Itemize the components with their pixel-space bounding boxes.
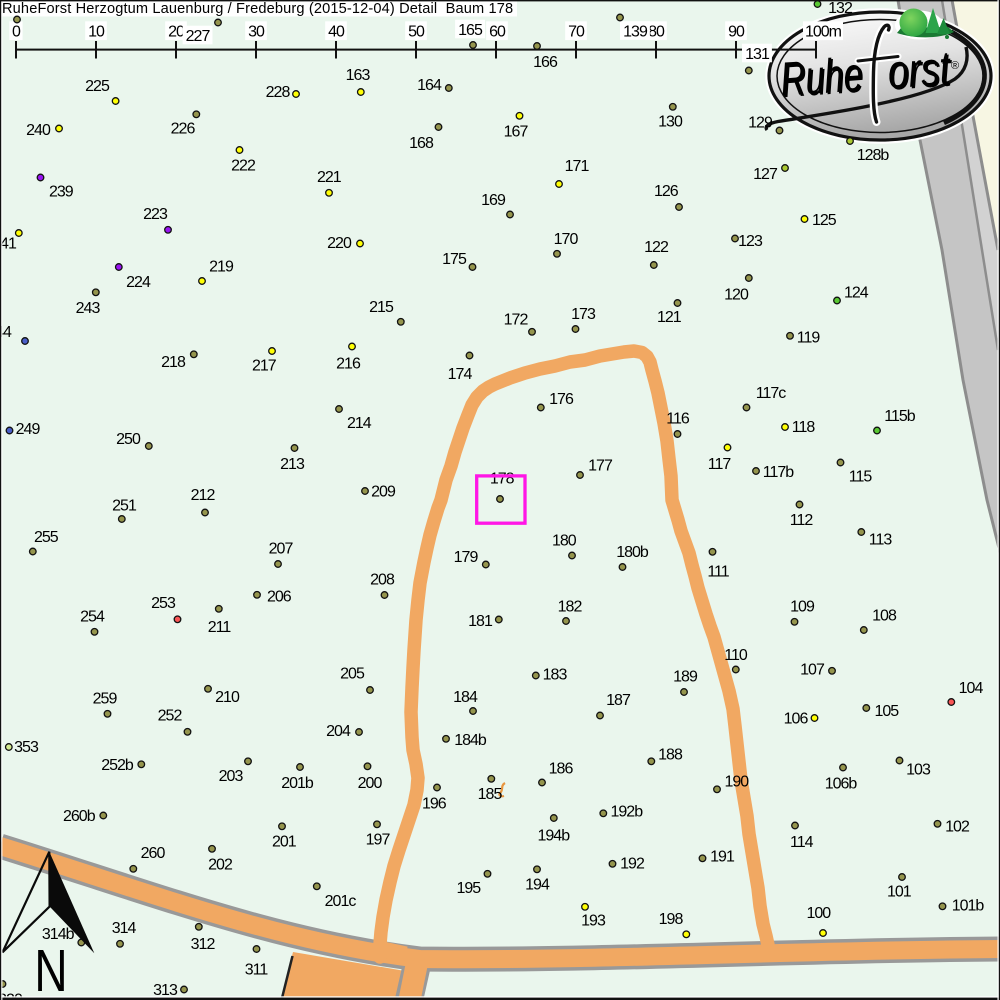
svg-text:122: 122 [644,239,669,256]
svg-text:198: 198 [659,911,684,928]
svg-text:172: 172 [504,312,529,329]
svg-text:102: 102 [945,818,970,835]
svg-text:RuheForst Herzogtum Lauenburg: RuheForst Herzogtum Lauenburg / Fredebur… [2,1,513,17]
svg-text:226: 226 [171,120,196,137]
svg-text:171: 171 [565,158,590,175]
svg-text:241: 241 [0,236,17,253]
svg-text:60: 60 [489,23,506,40]
svg-text:107: 107 [800,662,825,679]
svg-text:20: 20 [168,23,185,40]
svg-text:40: 40 [328,23,345,40]
svg-text:118: 118 [792,419,816,436]
svg-text:70: 70 [568,23,585,40]
svg-text:101: 101 [887,884,912,901]
svg-text:213: 213 [280,456,305,473]
svg-text:208: 208 [370,572,395,589]
svg-text:312: 312 [191,936,216,953]
svg-text:196: 196 [422,795,447,812]
svg-text:228: 228 [266,84,291,101]
svg-text:353: 353 [14,739,39,756]
svg-text:175: 175 [442,251,467,268]
svg-text:252b: 252b [101,757,134,774]
svg-text:240: 240 [26,122,51,139]
svg-text:188: 188 [658,747,683,764]
svg-text:173: 173 [571,306,596,323]
svg-text:178: 178 [490,471,515,488]
svg-text:90: 90 [728,23,745,40]
svg-text:117c: 117c [756,385,787,402]
svg-text:205: 205 [340,665,365,682]
svg-text:125: 125 [812,212,837,229]
svg-text:N: N [34,939,67,1000]
svg-text:168: 168 [409,135,434,152]
svg-text:210: 210 [215,689,240,706]
svg-text:101b: 101b [952,897,985,914]
svg-text:194b: 194b [538,827,571,844]
svg-text:219: 219 [209,258,234,275]
svg-text:197: 197 [366,832,391,849]
svg-text:253: 253 [151,595,176,612]
svg-text:50: 50 [408,23,425,40]
svg-text:212: 212 [191,487,216,504]
svg-text:204: 204 [326,723,351,740]
svg-text:Ruhe: Ruhe [779,48,864,107]
svg-text:126: 126 [654,183,679,200]
svg-text:184b: 184b [454,732,487,749]
svg-text:220: 220 [327,235,352,252]
svg-text:183: 183 [543,667,568,684]
svg-text:165: 165 [458,22,483,39]
svg-text:184: 184 [453,689,478,706]
svg-text:201c: 201c [325,893,357,910]
svg-text:223: 223 [143,206,168,223]
svg-text:192b: 192b [611,803,644,820]
svg-text:108: 108 [872,607,897,624]
svg-text:250: 250 [116,431,141,448]
svg-text:®: ® [951,60,959,72]
svg-text:128b: 128b [857,147,890,164]
svg-text:185: 185 [478,786,503,803]
svg-text:177: 177 [588,457,613,474]
svg-text:111: 111 [707,563,729,580]
svg-text:112: 112 [790,512,814,529]
svg-text:117b: 117b [763,464,795,481]
svg-text:130: 130 [658,114,683,131]
svg-text:105: 105 [874,703,899,720]
svg-text:249: 249 [16,421,41,438]
svg-text:255: 255 [34,529,59,546]
svg-text:221: 221 [317,169,342,186]
svg-text:164: 164 [417,77,442,94]
svg-text:10: 10 [88,23,105,40]
svg-text:106b: 106b [825,775,858,792]
svg-text:313: 313 [153,982,178,999]
svg-text:129: 129 [748,115,773,132]
svg-text:206: 206 [267,589,292,606]
svg-text:170: 170 [554,231,579,248]
svg-text:169: 169 [481,192,506,209]
svg-text:174: 174 [448,366,473,383]
svg-text:117: 117 [708,456,732,473]
svg-text:193: 193 [581,912,606,929]
svg-text:239: 239 [49,184,74,201]
svg-text:200: 200 [358,775,383,792]
svg-text:189: 189 [673,669,698,686]
svg-text:166: 166 [533,54,558,71]
svg-text:100m: 100m [805,23,842,40]
svg-text:orst: orst [886,42,953,99]
svg-text:194: 194 [525,877,550,894]
svg-text:103: 103 [906,762,931,779]
svg-text:186: 186 [549,760,574,777]
svg-text:115: 115 [849,469,873,486]
svg-text:195: 195 [456,880,481,897]
svg-text:202: 202 [208,857,233,874]
svg-text:30: 30 [248,23,265,40]
svg-text:209: 209 [371,484,396,501]
svg-text:254: 254 [80,608,105,625]
svg-text:131: 131 [745,46,770,63]
svg-text:109: 109 [790,598,815,615]
svg-text:104: 104 [959,680,984,697]
svg-text:163: 163 [346,67,371,84]
svg-text:121: 121 [657,309,682,326]
svg-text:123: 123 [738,233,763,250]
svg-text:191: 191 [710,848,735,865]
svg-text:243: 243 [76,300,101,317]
svg-text:224: 224 [126,274,151,291]
svg-text:119: 119 [797,330,821,347]
svg-text:217: 217 [252,357,277,374]
svg-text:259: 259 [93,690,118,707]
svg-text:167: 167 [504,123,529,140]
svg-text:201: 201 [272,833,297,850]
svg-text:113: 113 [869,532,893,549]
svg-text:190: 190 [724,773,749,790]
svg-text:180: 180 [552,532,577,549]
svg-text:201b: 201b [281,775,314,792]
svg-text:252: 252 [158,707,183,724]
svg-text:187: 187 [606,692,631,709]
svg-text:182: 182 [558,598,583,615]
svg-text:225: 225 [85,78,110,95]
svg-text:120: 120 [724,287,749,304]
svg-text:114: 114 [790,834,814,851]
svg-text:218: 218 [161,354,186,371]
svg-text:192: 192 [620,855,645,872]
svg-text:80: 80 [648,23,665,40]
svg-text:0: 0 [12,23,21,40]
svg-text:203: 203 [219,768,244,785]
svg-text:260b: 260b [63,808,96,825]
svg-text:214: 214 [347,415,372,432]
svg-text:215: 215 [369,299,394,316]
svg-text:311: 311 [245,961,269,978]
svg-text:211: 211 [208,619,232,636]
svg-text:110: 110 [724,647,748,664]
svg-text:139: 139 [623,23,648,40]
svg-text:127: 127 [753,166,778,183]
svg-text:116: 116 [666,410,690,427]
svg-text:260: 260 [141,845,166,862]
svg-text:124: 124 [844,285,869,302]
svg-text:100: 100 [806,905,831,922]
svg-text:179: 179 [454,549,479,566]
svg-text:180b: 180b [616,544,649,561]
svg-text:132: 132 [828,0,853,17]
svg-text:251: 251 [112,497,137,514]
svg-text:176: 176 [549,391,574,408]
svg-text:314: 314 [112,920,137,937]
svg-text:106: 106 [784,710,809,727]
svg-text:207: 207 [269,540,294,557]
svg-text:181: 181 [468,613,493,630]
svg-text:222: 222 [231,157,256,174]
svg-text:115b: 115b [884,408,916,425]
svg-text:227: 227 [186,28,211,45]
svg-text:216: 216 [336,355,361,372]
